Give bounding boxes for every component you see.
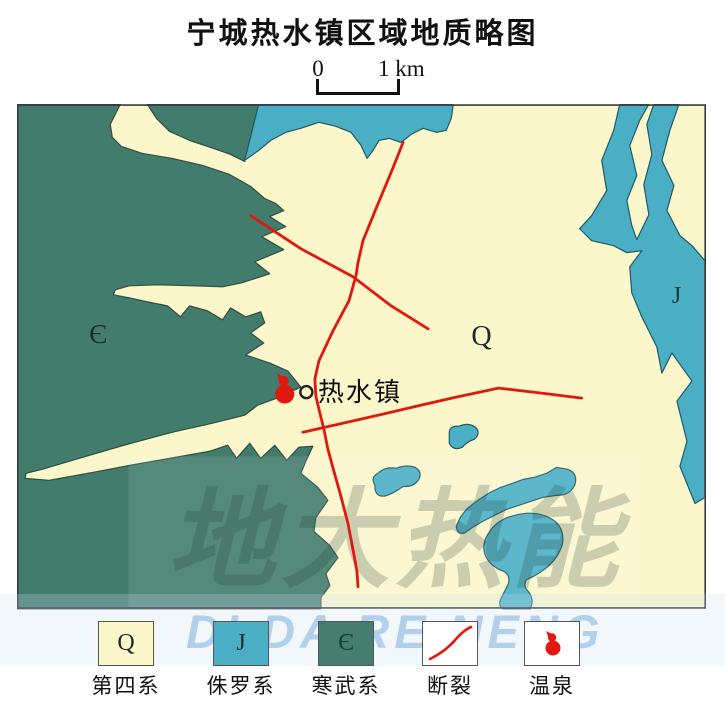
legend-swatch-fault [422, 621, 478, 666]
town-label: 热水镇 [318, 378, 402, 407]
legend-swatch-cambrian: Є [318, 621, 374, 666]
hot-spring-legend-icon [526, 623, 578, 664]
geological-map: 地大热能 热水镇 Є Q J [17, 104, 706, 610]
legend-symbol-q: Q [117, 630, 134, 657]
scale-bracket [316, 79, 400, 95]
legend-swatch-quaternary: Q [98, 621, 154, 666]
label-cambrian: Є [89, 319, 107, 349]
label-jurassic: J [672, 283, 681, 309]
legend-label-spring: 温泉 [497, 670, 607, 700]
watermark-cn: 地大热能 [167, 480, 631, 601]
legend-symbol-j: J [236, 630, 245, 657]
legend-label-jurassic: 侏罗系 [186, 670, 296, 700]
page-title: 宁城热水镇区域地质略图 [0, 10, 725, 52]
fault-line-icon [424, 623, 476, 664]
scale-bar: 0 1 km [0, 54, 725, 100]
legend-symbol-e: Є [338, 630, 354, 657]
legend-label-fault: 断裂 [395, 670, 505, 700]
label-quaternary: Q [471, 321, 491, 352]
town-marker [300, 386, 312, 398]
legend-label-quaternary: 第四系 [71, 670, 181, 700]
legend-swatch-spring [524, 621, 580, 666]
legend-label-cambrian: 寒武系 [291, 670, 401, 700]
legend: Q 第四系 J 侏罗系 Є 寒武系 断裂 [0, 618, 725, 702]
legend-swatch-jurassic: J [213, 621, 269, 666]
page: 宁城热水镇区域地质略图 0 1 km 地大热能 [0, 0, 725, 702]
